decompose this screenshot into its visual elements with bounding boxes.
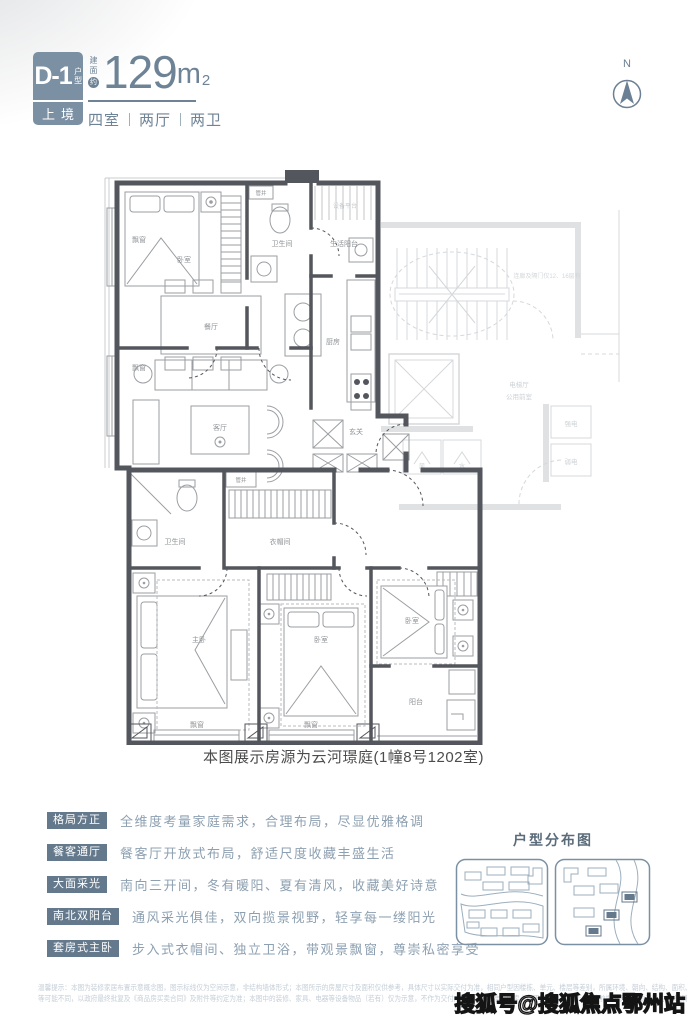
room-label-pipe-shaft: 管井 <box>255 189 267 197</box>
distribution-map: 户型分布图 <box>455 830 651 946</box>
feature-list: 格局方正 全维度考量家庭需求，合理布局，尽显优雅格调 餐客通厅 餐客厅开放式布局… <box>47 809 480 969</box>
feature-desc: 步入式衣帽间、独立卫浴，带观景飘窗，尊崇私密享受 <box>132 939 480 958</box>
area-power: 2 <box>202 72 210 89</box>
feature-desc: 餐客厅开放式布局，舒适尺度收藏丰盛生活 <box>120 843 396 862</box>
page: D-1 户型 上境 建 面 约 129 m2 四室 两厅 两卫 N <box>0 0 687 1021</box>
feature-tag: 大面采光 <box>47 876 107 893</box>
room-label-elevator-hall: 电梯厅 <box>509 380 529 389</box>
feature-desc: 通风采光俱佳，双向揽景视野，轻享每一缕阳光 <box>132 907 437 926</box>
unit-type-badge-top: D-1 户型 <box>33 52 83 102</box>
feature-row: 套房式主卧 步入式衣帽间、独立卫浴，带观景飘窗，尊崇私密享受 <box>47 937 480 959</box>
room-label-master: 主卧 <box>192 635 206 644</box>
room-label-weak-power: 弱电 <box>565 457 579 466</box>
feature-row: 大面采光 南向三开间，冬有暖阳、夏有清风，收藏美好诗意 <box>47 873 480 895</box>
room-label-strong-power: 强电 <box>565 419 579 428</box>
room-label-bay-window: 飘窗 <box>132 235 146 244</box>
feature-tag: 南北双阳台 <box>47 908 119 925</box>
room-label-pipe-shaft: 管井 <box>235 476 247 484</box>
room-label-shared-lobby: 公用前室 <box>506 392 533 401</box>
area-value: 129 <box>103 49 177 95</box>
feature-tag: 套房式主卧 <box>47 940 119 957</box>
unit-code-suffix: 户型 <box>74 67 82 85</box>
unit-code: D-1 <box>34 64 71 89</box>
room-label-bay-window: 飘窗 <box>304 720 318 729</box>
room-count: 四室 <box>88 109 120 130</box>
room-label-bathroom: 卫生间 <box>165 537 186 546</box>
distribution-map-right <box>554 858 651 946</box>
north-arrow-icon <box>607 73 647 115</box>
room-label-kitchen: 厨房 <box>326 337 340 346</box>
feature-row: 餐客通厅 餐客厅开放式布局，舒适尺度收藏丰盛生活 <box>47 841 480 863</box>
feature-row: 格局方正 全维度考量家庭需求，合理布局，尽显优雅格调 <box>47 809 480 831</box>
room-label-service-balcony: 生活阳台 <box>330 239 358 248</box>
separator <box>129 113 130 126</box>
area-prefix: 建 面 约 <box>88 56 99 88</box>
distribution-map-left <box>455 858 549 946</box>
area-group: 建 面 约 129 m2 四室 两厅 两卫 <box>88 49 222 130</box>
feature-desc: 南向三开间，冬有暖阳、夏有清风，收藏美好诗意 <box>120 875 439 894</box>
feature-row: 南北双阳台 通风采光俱佳，双向揽景视野，轻享每一缕阳光 <box>47 905 480 927</box>
room-label-equipment-platform: 设备平台 <box>333 202 357 210</box>
room-label-bedroom: 卧室 <box>314 635 328 644</box>
room-label-living: 客厅 <box>213 423 227 432</box>
room-label-bay-window: 飘窗 <box>132 363 146 372</box>
floorplan-drawing: 电梯厅 公用前室 强电 弱电 风 水 连廊及隔门仅12、16层有 <box>99 168 626 745</box>
room-label-dining: 餐厅 <box>204 322 218 331</box>
area-prefix-1: 建 <box>90 56 98 66</box>
room-label-balcony: 阳台 <box>409 697 423 706</box>
feature-desc: 全维度考量家庭需求，合理布局，尽显优雅格调 <box>120 811 425 830</box>
core-note: 连廊及隔门仅12、16层有 <box>513 272 580 280</box>
bath-count: 两卫 <box>190 109 222 130</box>
north-indicator: N <box>607 58 647 120</box>
area-divider <box>88 100 196 102</box>
area-prefix-2: 面 <box>90 66 98 76</box>
feature-tag: 餐客通厅 <box>47 844 107 861</box>
room-label-closet: 衣帽间 <box>270 537 291 546</box>
area-prefix-3: 约 <box>88 77 99 88</box>
north-label: N <box>607 58 647 73</box>
unit-type-badge: D-1 户型 上境 <box>33 52 83 125</box>
watermark: 搜狐号@搜狐焦点鄂州站 <box>455 988 685 1018</box>
room-label-bedroom: 卧室 <box>177 255 191 264</box>
communal-core: 电梯厅 公用前室 强电 弱电 风 水 连廊及隔门仅12、16层有 <box>381 210 619 510</box>
floorplan: 电梯厅 公用前室 强电 弱电 风 水 连廊及隔门仅12、16层有 <box>99 168 626 750</box>
series-name: 上境 <box>33 102 83 125</box>
area-unit: m2 <box>177 60 211 93</box>
room-label-bedroom: 卧室 <box>405 616 419 625</box>
separator <box>180 113 181 126</box>
feature-tag: 格局方正 <box>47 812 107 829</box>
room-label-bay-window: 飘窗 <box>190 720 204 729</box>
plan-caption: 本图展示房源为云河璟庭(1幢8号1202室) <box>0 746 687 767</box>
room-layout: 四室 两厅 两卫 <box>88 109 222 130</box>
hall-count: 两厅 <box>139 109 171 130</box>
distribution-title: 户型分布图 <box>455 830 651 850</box>
room-label-bathroom: 卫生间 <box>272 239 293 248</box>
room-label-foyer: 玄关 <box>349 427 363 436</box>
